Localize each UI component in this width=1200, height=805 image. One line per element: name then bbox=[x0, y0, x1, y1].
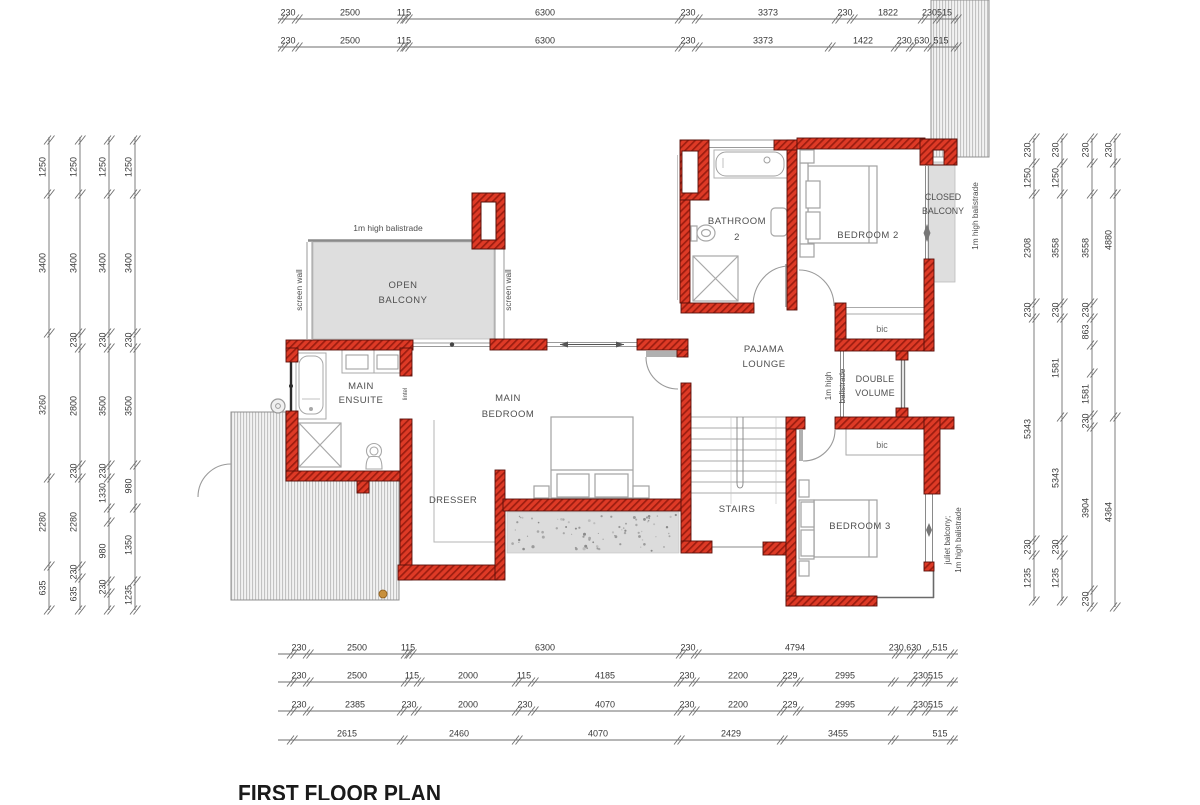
svg-text:BATHROOM: BATHROOM bbox=[708, 216, 766, 227]
svg-text:VOLUME: VOLUME bbox=[855, 388, 895, 398]
svg-text:PAJAMA: PAJAMA bbox=[744, 344, 784, 355]
svg-text:1235: 1235 bbox=[1023, 568, 1033, 588]
svg-text:863: 863 bbox=[1081, 324, 1091, 339]
svg-text:3373: 3373 bbox=[753, 36, 773, 46]
svg-text:230515: 230515 bbox=[913, 700, 943, 710]
svg-text:3400: 3400 bbox=[38, 253, 48, 273]
svg-text:230: 230 bbox=[680, 643, 695, 653]
svg-text:balistrade: balistrade bbox=[838, 368, 847, 403]
svg-text:2385: 2385 bbox=[345, 700, 365, 710]
svg-text:3400: 3400 bbox=[124, 253, 134, 273]
svg-text:4880: 4880 bbox=[1104, 230, 1114, 250]
svg-text:1m high balistrade: 1m high balistrade bbox=[970, 182, 980, 250]
svg-text:STAIRS: STAIRS bbox=[719, 504, 756, 515]
svg-text:3373: 3373 bbox=[758, 8, 778, 18]
svg-text:515: 515 bbox=[933, 36, 948, 46]
svg-text:1235: 1235 bbox=[1051, 568, 1061, 588]
svg-text:230: 230 bbox=[1081, 591, 1091, 606]
svg-text:1250: 1250 bbox=[1023, 168, 1033, 188]
svg-text:2200: 2200 bbox=[728, 671, 748, 681]
svg-text:1581: 1581 bbox=[1081, 384, 1091, 404]
svg-text:screen wall: screen wall bbox=[294, 269, 304, 311]
svg-text:980: 980 bbox=[98, 543, 108, 558]
svg-text:screen wall: screen wall bbox=[503, 269, 513, 311]
svg-text:2460: 2460 bbox=[449, 729, 469, 739]
svg-text:230: 230 bbox=[1081, 142, 1091, 157]
svg-text:2615: 2615 bbox=[337, 729, 357, 739]
svg-text:DRESSER: DRESSER bbox=[429, 495, 477, 506]
svg-text:230: 230 bbox=[124, 332, 134, 347]
svg-text:BALCONY: BALCONY bbox=[922, 206, 964, 216]
svg-text:115: 115 bbox=[397, 36, 411, 46]
svg-text:DOUBLE: DOUBLE bbox=[856, 374, 895, 384]
svg-text:2280: 2280 bbox=[69, 512, 79, 532]
svg-text:3904: 3904 bbox=[1081, 498, 1091, 518]
svg-text:230: 230 bbox=[98, 579, 108, 594]
svg-text:230: 230 bbox=[1023, 142, 1033, 157]
svg-text:230: 230 bbox=[1104, 142, 1114, 157]
svg-text:230: 230 bbox=[680, 36, 695, 46]
svg-text:bic: bic bbox=[876, 324, 888, 334]
svg-text:2429: 2429 bbox=[721, 729, 741, 739]
svg-text:bic: bic bbox=[876, 440, 888, 450]
svg-text:230: 230 bbox=[680, 8, 695, 18]
svg-text:515: 515 bbox=[932, 729, 947, 739]
svg-text:230: 230 bbox=[1081, 302, 1091, 317]
svg-text:229: 229 bbox=[782, 700, 797, 710]
svg-text:230: 230 bbox=[69, 332, 79, 347]
svg-text:115: 115 bbox=[405, 671, 419, 681]
svg-text:2000: 2000 bbox=[458, 671, 478, 681]
svg-text:5343: 5343 bbox=[1023, 419, 1033, 439]
svg-text:230,630: 230,630 bbox=[889, 643, 922, 653]
svg-text:515: 515 bbox=[932, 643, 947, 653]
svg-text:230: 230 bbox=[98, 332, 108, 347]
svg-text:2000: 2000 bbox=[458, 700, 478, 710]
svg-text:229: 229 bbox=[782, 671, 797, 681]
svg-text:CLOSED: CLOSED bbox=[925, 192, 961, 202]
svg-text:230515: 230515 bbox=[922, 8, 952, 18]
svg-text:2500: 2500 bbox=[347, 671, 367, 681]
svg-text:3455: 3455 bbox=[828, 729, 848, 739]
svg-text:2280: 2280 bbox=[38, 512, 48, 532]
svg-text:230: 230 bbox=[1051, 539, 1061, 554]
svg-text:230: 230 bbox=[280, 8, 295, 18]
svg-text:1m high: 1m high bbox=[824, 372, 833, 400]
svg-text:3500: 3500 bbox=[98, 396, 108, 416]
svg-text:1350: 1350 bbox=[124, 535, 134, 555]
svg-text:1235: 1235 bbox=[124, 585, 134, 605]
svg-text:230515: 230515 bbox=[913, 671, 943, 681]
svg-text:2500: 2500 bbox=[340, 8, 360, 18]
svg-text:4070: 4070 bbox=[595, 700, 615, 710]
svg-text:115: 115 bbox=[517, 671, 531, 681]
svg-text:2995: 2995 bbox=[835, 671, 855, 681]
svg-text:6300: 6300 bbox=[535, 36, 555, 46]
svg-text:115: 115 bbox=[397, 8, 411, 18]
svg-text:juliet balcony;: juliet balcony; bbox=[943, 516, 952, 565]
svg-text:1m high balistrade: 1m high balistrade bbox=[353, 223, 423, 233]
svg-text:635: 635 bbox=[69, 586, 79, 601]
svg-text:2500: 2500 bbox=[347, 643, 367, 653]
svg-text:2995: 2995 bbox=[835, 700, 855, 710]
svg-text:230: 230 bbox=[69, 463, 79, 478]
svg-text:MAIN: MAIN bbox=[348, 381, 374, 392]
svg-text:230: 230 bbox=[401, 700, 416, 710]
svg-text:4364: 4364 bbox=[1104, 502, 1114, 522]
svg-text:BEDROOM 2: BEDROOM 2 bbox=[837, 230, 899, 241]
svg-text:3400: 3400 bbox=[98, 253, 108, 273]
svg-text:3260: 3260 bbox=[38, 395, 48, 415]
svg-text:3558: 3558 bbox=[1081, 238, 1091, 258]
svg-text:980: 980 bbox=[124, 478, 134, 493]
svg-text:BALCONY: BALCONY bbox=[379, 295, 428, 306]
svg-text:lintel: lintel bbox=[403, 388, 409, 400]
svg-text:230: 230 bbox=[837, 8, 852, 18]
svg-text:BEDROOM 3: BEDROOM 3 bbox=[829, 521, 891, 532]
svg-text:230: 230 bbox=[98, 463, 108, 478]
svg-text:1250: 1250 bbox=[98, 157, 108, 177]
svg-text:1581: 1581 bbox=[1051, 358, 1061, 378]
svg-text:BEDROOM: BEDROOM bbox=[482, 409, 535, 420]
svg-text:3500: 3500 bbox=[124, 396, 134, 416]
svg-text:230: 230 bbox=[69, 564, 79, 579]
svg-text:1330: 1330 bbox=[98, 483, 108, 503]
svg-text:1822: 1822 bbox=[878, 8, 898, 18]
svg-text:ENSUITE: ENSUITE bbox=[339, 395, 384, 406]
svg-text:230: 230 bbox=[679, 700, 694, 710]
svg-text:230: 230 bbox=[1081, 413, 1091, 428]
svg-text:4185: 4185 bbox=[595, 671, 615, 681]
svg-text:230: 230 bbox=[679, 671, 694, 681]
svg-text:LOUNGE: LOUNGE bbox=[742, 359, 785, 370]
svg-text:230: 230 bbox=[280, 36, 295, 46]
svg-text:2: 2 bbox=[734, 232, 740, 243]
svg-text:6300: 6300 bbox=[535, 643, 555, 653]
svg-text:2800: 2800 bbox=[69, 396, 79, 416]
svg-text:5343: 5343 bbox=[1051, 468, 1061, 488]
svg-text:1250: 1250 bbox=[1051, 168, 1061, 188]
svg-text:FIRST FLOOR PLAN: FIRST FLOOR PLAN bbox=[238, 780, 441, 800]
svg-text:230: 230 bbox=[517, 700, 532, 710]
svg-text:230: 230 bbox=[1051, 142, 1061, 157]
svg-text:1250: 1250 bbox=[69, 157, 79, 177]
svg-text:230,630: 230,630 bbox=[897, 36, 930, 46]
svg-text:3400: 3400 bbox=[69, 253, 79, 273]
svg-text:230: 230 bbox=[1051, 302, 1061, 317]
svg-text:230: 230 bbox=[1023, 302, 1033, 317]
svg-text:1250: 1250 bbox=[124, 157, 134, 177]
svg-text:2500: 2500 bbox=[340, 36, 360, 46]
svg-text:230: 230 bbox=[291, 671, 306, 681]
svg-text:230: 230 bbox=[1023, 539, 1033, 554]
svg-text:635: 635 bbox=[38, 580, 48, 595]
svg-text:230: 230 bbox=[291, 643, 306, 653]
svg-text:115: 115 bbox=[401, 643, 415, 653]
svg-text:OPEN: OPEN bbox=[389, 280, 418, 291]
svg-text:4794: 4794 bbox=[785, 643, 805, 653]
svg-text:2200: 2200 bbox=[728, 700, 748, 710]
svg-text:1422: 1422 bbox=[853, 36, 873, 46]
svg-text:2308: 2308 bbox=[1023, 238, 1033, 258]
svg-text:1m high balistrade: 1m high balistrade bbox=[954, 507, 963, 573]
svg-text:6300: 6300 bbox=[535, 8, 555, 18]
svg-text:3558: 3558 bbox=[1051, 238, 1061, 258]
svg-text:230: 230 bbox=[291, 700, 306, 710]
svg-text:1250: 1250 bbox=[38, 157, 48, 177]
svg-text:4070: 4070 bbox=[588, 729, 608, 739]
svg-text:MAIN: MAIN bbox=[495, 393, 521, 404]
